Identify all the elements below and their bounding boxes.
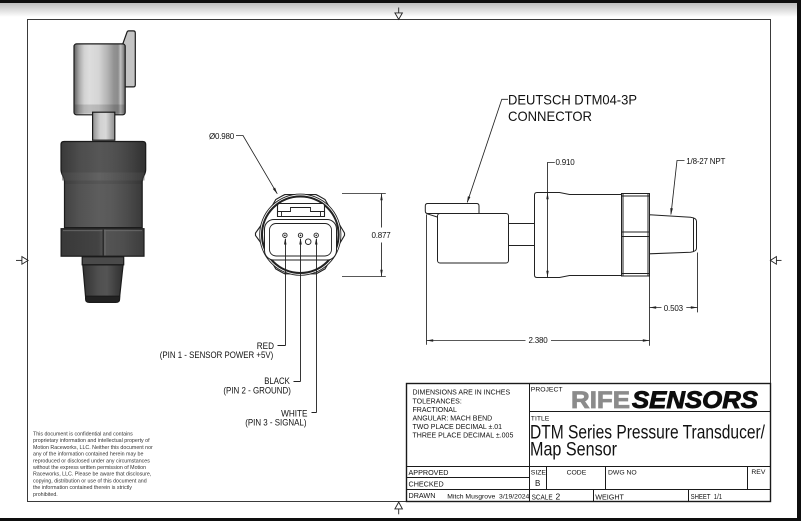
svg-text:APPROVED: APPROVED [409,468,449,477]
svg-text:Ø0.980: Ø0.980 [209,132,235,141]
svg-text:0.503: 0.503 [664,304,684,313]
svg-text:PROJECT: PROJECT [531,386,563,393]
svg-text:DWG NO: DWG NO [608,469,637,476]
svg-text:2: 2 [556,491,561,501]
svg-text:prohibited.: prohibited. [33,492,58,498]
svg-text:SENSORS: SENSORS [632,387,759,414]
svg-text:reproduced or disclosed under: reproduced or disclosed under any circum… [33,458,150,464]
svg-text:SIZE: SIZE [531,469,547,476]
svg-text:ANGULAR: MACH BEND: ANGULAR: MACH BEND [413,416,493,423]
svg-text:(PIN 3 - SIGNAL): (PIN 3 - SIGNAL) [245,418,306,428]
svg-text:Motion Raceworks, LLC. Neither: Motion Raceworks, LLC. Neither this docu… [33,445,153,451]
svg-text:TWO PLACE DECIMAL ±.01: TWO PLACE DECIMAL ±.01 [413,424,503,431]
svg-text:without the express written pe: without the express written permission o… [33,465,146,471]
svg-text:SHEET 1/1: SHEET 1/1 [691,492,723,501]
svg-text:(PIN 2 - GROUND): (PIN 2 - GROUND) [223,385,291,395]
svg-text:FRACTIONAL: FRACTIONAL [413,407,457,414]
svg-text:2.380: 2.380 [528,336,548,345]
svg-text:(PIN 1 - SENSOR POWER +5V): (PIN 1 - SENSOR POWER +5V) [160,350,273,360]
svg-text:CHECKED: CHECKED [409,479,444,488]
svg-text:the information contained ther: the information contained therein is str… [33,485,132,491]
svg-text:B: B [535,479,540,488]
svg-text:WEIGHT: WEIGHT [595,492,624,501]
svg-text:DIMENSIONS ARE IN INCHES: DIMENSIONS ARE IN INCHES [413,390,511,397]
svg-text:THREE PLACE DECIMAL ±.005: THREE PLACE DECIMAL ±.005 [413,433,514,440]
svg-text:1/8-27 NPT: 1/8-27 NPT [686,157,725,166]
svg-text:CONNECTOR: CONNECTOR [508,109,592,124]
svg-text:Map Sensor: Map Sensor [530,439,617,461]
svg-text:any of the information contain: any of the information contained herein … [33,452,143,458]
svg-text:0.877: 0.877 [371,231,391,240]
svg-text:SCALE: SCALE [532,492,553,501]
svg-text:copying, distribution or use o: copying, distribution or use of this doc… [33,478,147,484]
svg-text:DRAWN: DRAWN [409,491,436,500]
svg-text:Raceworks, LLC. Please be awar: Raceworks, LLC. Please be aware that dis… [33,472,151,478]
svg-text:proprietary information and in: proprietary information and intellectual… [33,438,150,444]
svg-text:Mitch Musgrove 3/19/2024: Mitch Musgrove 3/19/2024 [447,493,529,500]
svg-text:REV: REV [751,469,765,476]
svg-text:0.910: 0.910 [556,158,576,167]
svg-text:DEUTSCH DTM04-3P: DEUTSCH DTM04-3P [508,93,637,108]
svg-text:TOLERANCES:: TOLERANCES: [413,398,462,405]
svg-text:CODE: CODE [567,469,587,476]
svg-text:This document is confidential: This document is confidential and contai… [33,432,133,438]
svg-text:RIFE: RIFE [571,387,630,414]
